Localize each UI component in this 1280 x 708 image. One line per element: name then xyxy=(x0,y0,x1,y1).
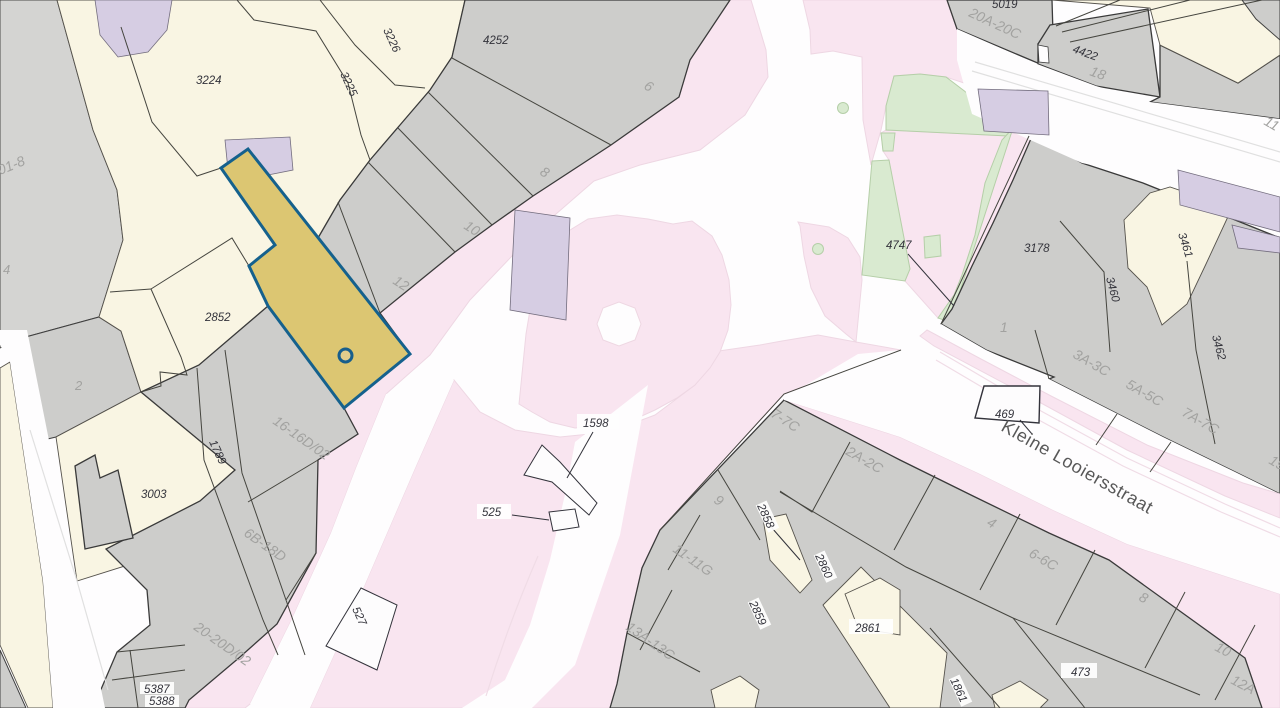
svg-text:3224: 3224 xyxy=(196,75,222,87)
svg-text:1598: 1598 xyxy=(583,418,609,430)
svg-text:3178: 3178 xyxy=(1024,243,1050,255)
svg-text:2852: 2852 xyxy=(204,312,231,324)
svg-text:3003: 3003 xyxy=(141,489,167,501)
svg-text:4747: 4747 xyxy=(886,240,912,252)
svg-text:4252: 4252 xyxy=(483,35,509,47)
svg-text:525: 525 xyxy=(482,507,502,519)
svg-text:5019: 5019 xyxy=(992,0,1018,11)
svg-text:5388: 5388 xyxy=(149,696,175,708)
svg-text:1: 1 xyxy=(1000,319,1008,335)
svg-text:2861: 2861 xyxy=(854,623,881,635)
svg-text:2: 2 xyxy=(74,378,83,393)
svg-text:4: 4 xyxy=(3,262,10,277)
svg-text:473: 473 xyxy=(1071,667,1091,679)
svg-text:5387: 5387 xyxy=(144,684,170,696)
